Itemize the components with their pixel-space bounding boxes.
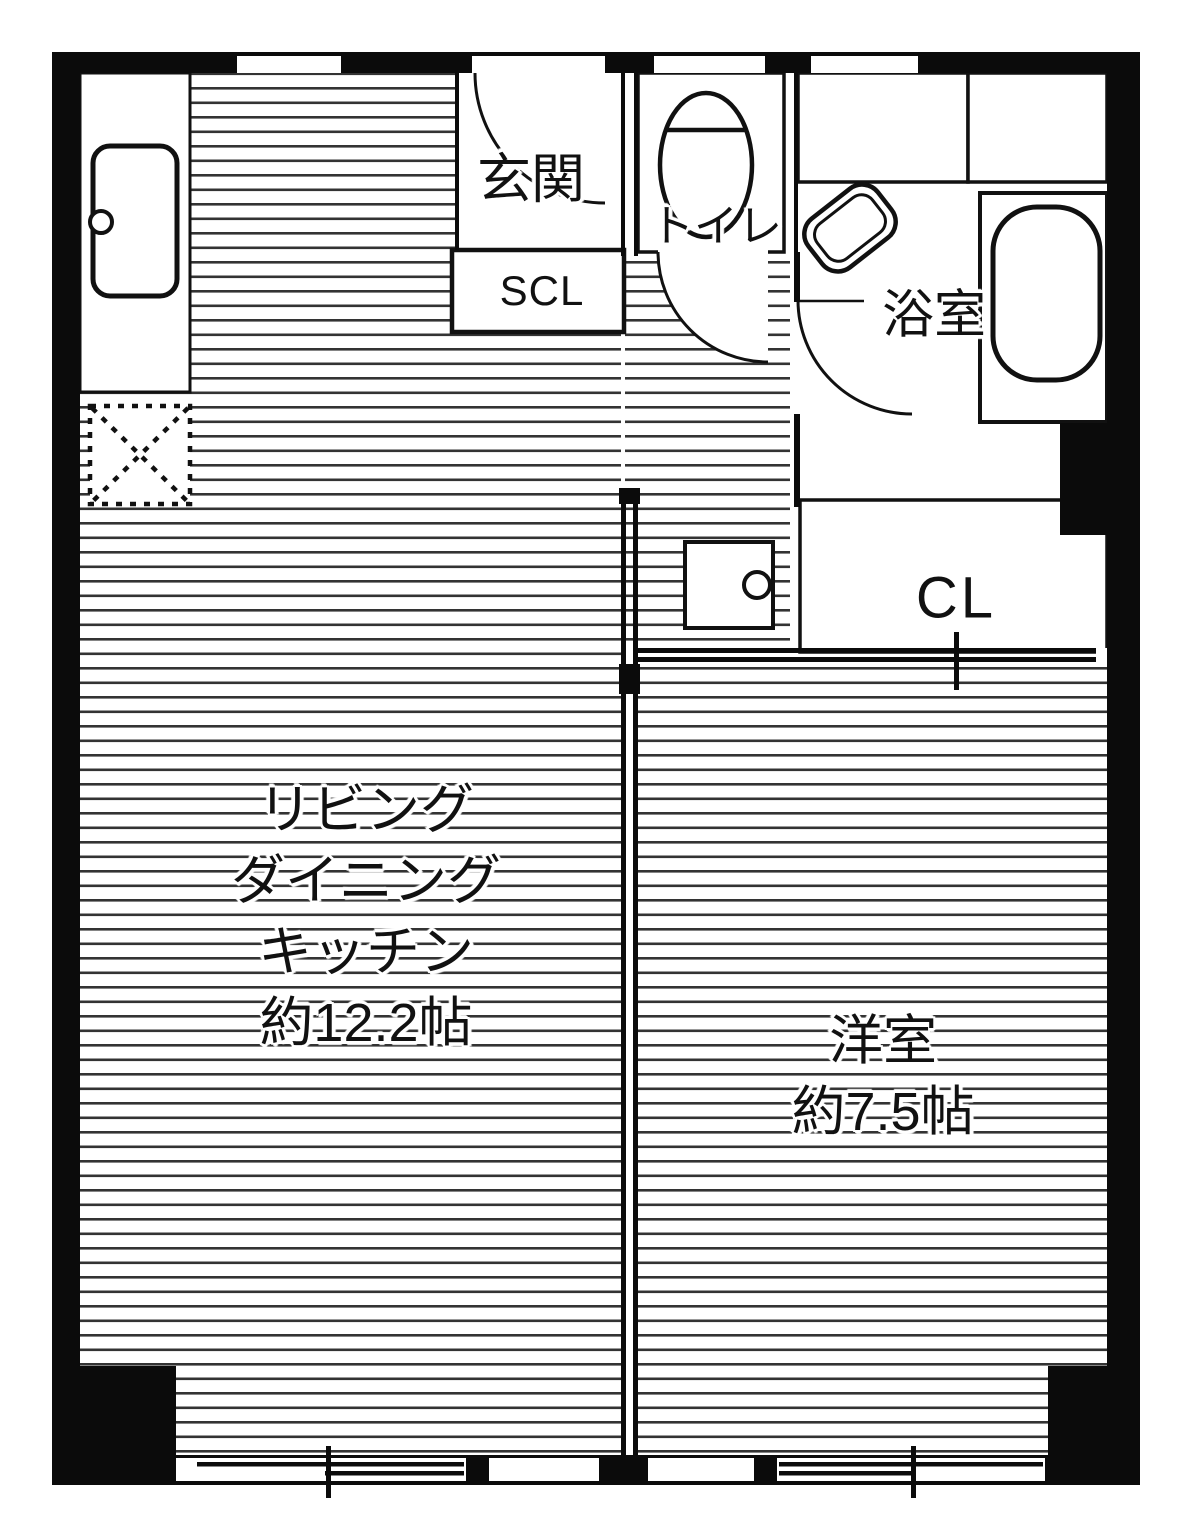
floorplan: 玄関 SCL トイレ 浴室 CL リビング ダイニング キッチン 約12.2帖 … bbox=[0, 0, 1200, 1523]
laundry-box bbox=[968, 73, 1107, 182]
ldk-label: リビング ダイニング キッチン 約12.2帖 bbox=[231, 775, 501, 1059]
refrigerator-space-icon bbox=[90, 406, 190, 504]
western-room-label-line2: 約7.5帖 bbox=[791, 1077, 974, 1148]
ldk-label-line1: リビング bbox=[231, 775, 501, 846]
ldk-label-line3: キッチン bbox=[231, 917, 501, 988]
bathroom-label: 浴室 bbox=[882, 273, 986, 348]
floorplan-drawing bbox=[0, 0, 1200, 1523]
kitchen-faucet-icon bbox=[90, 211, 112, 233]
bathtub-icon bbox=[993, 207, 1100, 380]
shoe-closet-label: SCL bbox=[500, 267, 585, 315]
ldk-label-line4: 約12.2帖 bbox=[231, 988, 501, 1059]
entrance-label: 玄関 bbox=[477, 135, 585, 214]
washing-machine-pan-icon bbox=[685, 542, 773, 628]
ldk-label-line2: ダイニング bbox=[231, 846, 501, 917]
western-room-label-line1: 洋室 bbox=[791, 1006, 974, 1077]
western-room-label: 洋室 約7.5帖 bbox=[791, 1006, 974, 1148]
closet-label: CL bbox=[916, 565, 996, 632]
vanity-box bbox=[798, 73, 968, 182]
toilet-label: トイレ bbox=[650, 190, 782, 254]
